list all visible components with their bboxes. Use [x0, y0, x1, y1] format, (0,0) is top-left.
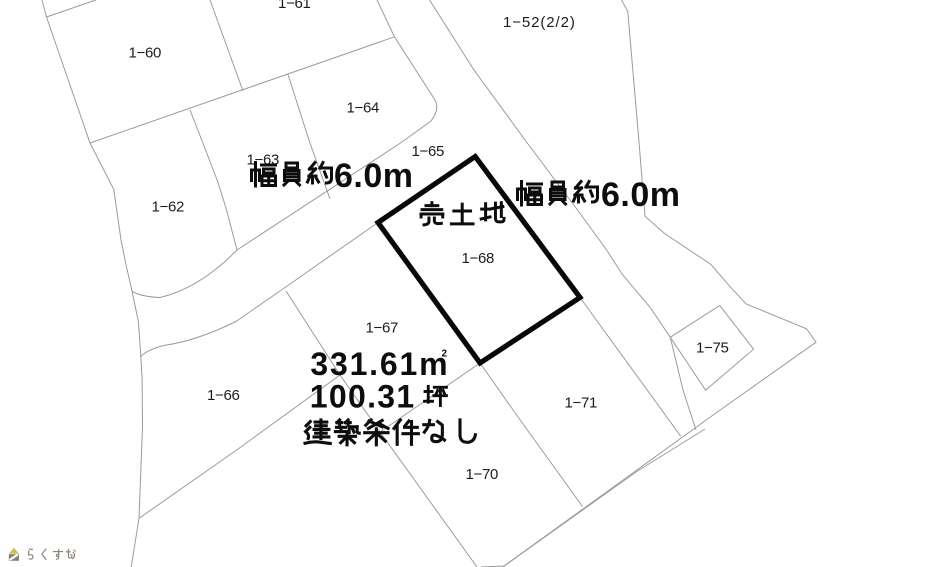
svg-text:1−71: 1−71 [565, 395, 598, 412]
svg-text:1−66: 1−66 [207, 387, 240, 404]
svg-text:1−70: 1−70 [466, 466, 499, 483]
svg-text:1−67: 1−67 [366, 320, 399, 337]
svg-text:2: 2 [442, 349, 448, 360]
svg-text:1−75: 1−75 [696, 340, 729, 357]
svg-text:1−64: 1−64 [347, 100, 380, 117]
svg-text:1−52(2/2): 1−52(2/2) [503, 14, 576, 31]
svg-text:1−68: 1−68 [462, 250, 495, 267]
svg-text:6.0m: 6.0m [601, 176, 681, 214]
svg-text:1−61: 1−61 [278, 0, 311, 12]
svg-text:1−60: 1−60 [129, 45, 162, 62]
svg-text:1−62: 1−62 [152, 199, 185, 216]
svg-text:6.0m: 6.0m [334, 157, 414, 195]
svg-text:1−65: 1−65 [412, 143, 445, 160]
svg-text:331.61m: 331.61m [310, 346, 449, 382]
svg-text:100.31: 100.31 [310, 379, 416, 415]
